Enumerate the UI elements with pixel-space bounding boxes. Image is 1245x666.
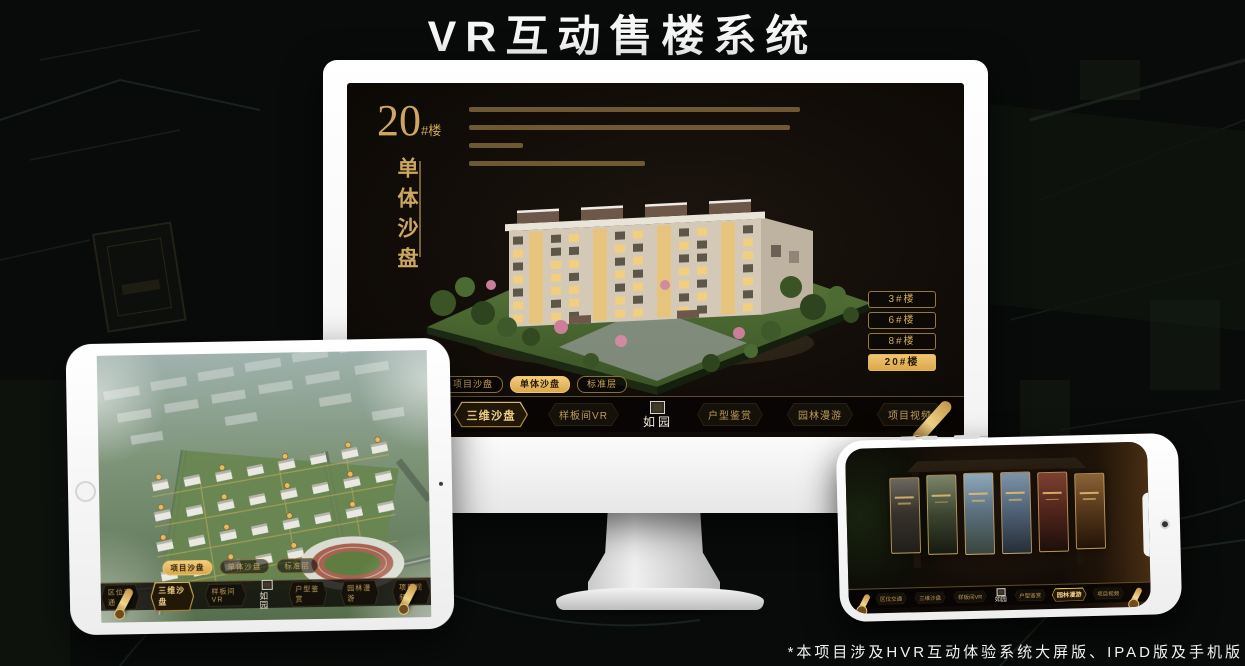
ipad-nav-bar: 区位交通 三维沙盘 样板间VR 如园 户型鉴赏 园林漫游 项目视频 (101, 577, 431, 611)
scene-card-courtyard[interactable] (926, 474, 958, 555)
scene-card-garden[interactable] (963, 472, 995, 555)
pill-single-sandtable[interactable]: 单体沙盘 (510, 376, 570, 393)
nav-garden-roam[interactable]: 园林漫游 (787, 403, 853, 426)
ipad-screen: 项目沙盘 单体沙盘 标准层 区位交通 三维沙盘 样板间VR 如园 户型鉴赏 园林… (97, 350, 432, 623)
nav-showroom-vr[interactable]: 样板间VR (953, 590, 986, 603)
brand-seal-icon (262, 580, 273, 590)
phone-screen: 区位交通 三维沙盘 样板间VR 如园 户型鉴赏 园林漫游 项目视频 (845, 442, 1151, 614)
view-pills: 项目沙盘 单体沙盘 标准层 (443, 376, 627, 393)
building-selector: 3#楼 6#楼 8#楼 20#楼 (868, 291, 936, 371)
ipad-view-pills: 项目沙盘 单体沙盘 标准层 (162, 558, 318, 576)
nav-showroom-vr[interactable]: 样板间VR (548, 403, 619, 426)
nav-floorplan-gallery[interactable]: 户型鉴赏 (1015, 589, 1046, 602)
building-button-20[interactable]: 20#楼 (868, 354, 936, 371)
phone-power-button[interactable] (954, 435, 980, 440)
nav-3d-sandtable[interactable]: 三维沙盘 (914, 591, 945, 604)
footnote: *本项目涉及HVR互动体验系统大屏版、IPAD版及手机版 (788, 641, 1243, 662)
pill-single-sandtable[interactable]: 单体沙盘 (219, 559, 269, 575)
scene-gallery (889, 470, 1106, 557)
scene-card-autumn[interactable] (1037, 472, 1069, 553)
pill-project-sandtable[interactable]: 项目沙盘 (443, 376, 503, 393)
phone-camera-icon (1162, 521, 1168, 527)
nav-floorplan-gallery[interactable]: 户型鉴赏 (697, 403, 763, 426)
brand-seal-icon (996, 588, 1005, 596)
pill-project-sandtable[interactable]: 项目沙盘 (162, 560, 212, 576)
monitor-stand-neck (588, 510, 720, 592)
nav-garden-roam[interactable]: 园林漫游 (1052, 587, 1087, 601)
phone-notch (1142, 492, 1151, 556)
nav-3d-sandtable[interactable]: 三维沙盘 (454, 402, 528, 428)
brand-logo: 如园 (259, 580, 275, 609)
ipad-home-button[interactable] (75, 481, 96, 502)
brand-logo: 如园 (995, 588, 1007, 603)
brand-seal-icon (650, 401, 665, 414)
page-title: VR互动售楼系统 (0, 2, 1245, 64)
nav-3d-sandtable[interactable]: 三维沙盘 (150, 581, 194, 611)
building-button-3[interactable]: 3#楼 (868, 291, 936, 308)
nav-project-video[interactable]: 项目视频 (1093, 587, 1124, 600)
pill-standard-floor[interactable]: 标准层 (276, 558, 318, 574)
scene-card-interior[interactable] (1074, 473, 1106, 550)
poster-stage: VR互动售楼系统 20#楼 单体沙盘 (0, 0, 1245, 666)
phone-volume-up-button[interactable] (900, 436, 916, 440)
phone-device: 区位交通 三维沙盘 样板间VR 如园 户型鉴赏 园林漫游 项目视频 (836, 433, 1182, 622)
nav-garden-roam[interactable]: 园林漫游 (340, 579, 379, 606)
scene-card-tower[interactable] (1000, 471, 1032, 554)
ipad-device: 项目沙盘 单体沙盘 标准层 区位交通 三维沙盘 样板间VR 如园 户型鉴赏 园林… (65, 338, 454, 636)
monitor-stand-base (556, 588, 764, 610)
brand-logo: 如园 (643, 401, 673, 428)
ipad-camera-icon (439, 481, 443, 485)
scene-card-gate[interactable] (889, 477, 921, 554)
nav-floorplan-gallery[interactable]: 户型鉴赏 (288, 580, 327, 607)
nav-showroom-vr[interactable]: 样板间VR (204, 583, 246, 607)
building-model[interactable] (409, 135, 889, 399)
building-button-8[interactable]: 8#楼 (868, 333, 936, 350)
pill-standard-floor[interactable]: 标准层 (577, 376, 627, 393)
phone-volume-down-button[interactable] (922, 436, 938, 440)
building-button-6[interactable]: 6#楼 (868, 312, 936, 329)
nav-location-traffic[interactable]: 区位交通 (875, 592, 906, 605)
